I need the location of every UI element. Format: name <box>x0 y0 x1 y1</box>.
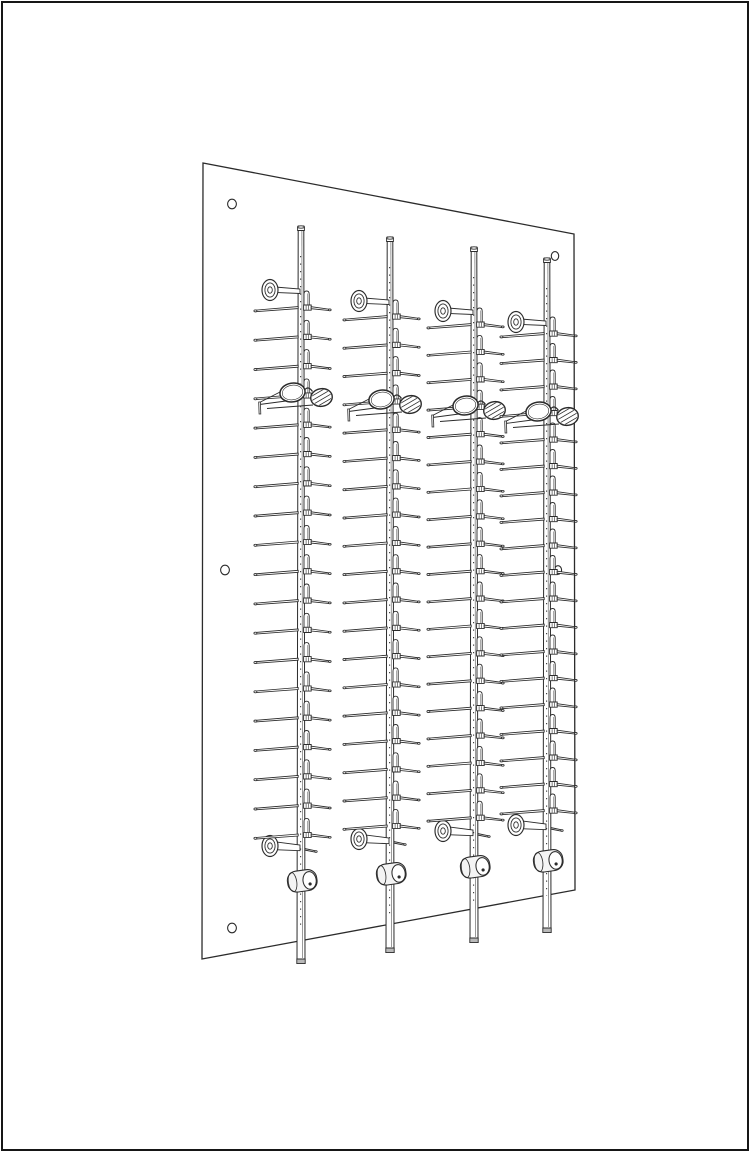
rod-bottom-cap <box>543 928 551 933</box>
mounting-hole-top-right <box>551 252 558 261</box>
rod-top-cap <box>471 247 478 252</box>
mounting-hole-top-left <box>228 199 237 209</box>
mounting-hole-bottom-left <box>228 923 237 933</box>
rod-top-cap <box>387 237 394 242</box>
rod-bottom-cap <box>386 948 394 953</box>
rod-bottom-cap <box>297 959 305 964</box>
mounting-hole-middle-left <box>221 565 230 575</box>
rod-bottom-cap <box>470 938 478 943</box>
illustration-svg <box>0 0 750 1152</box>
product-illustration <box>0 0 750 1152</box>
rod-top-cap <box>544 258 551 263</box>
rod-top-cap <box>298 226 305 231</box>
